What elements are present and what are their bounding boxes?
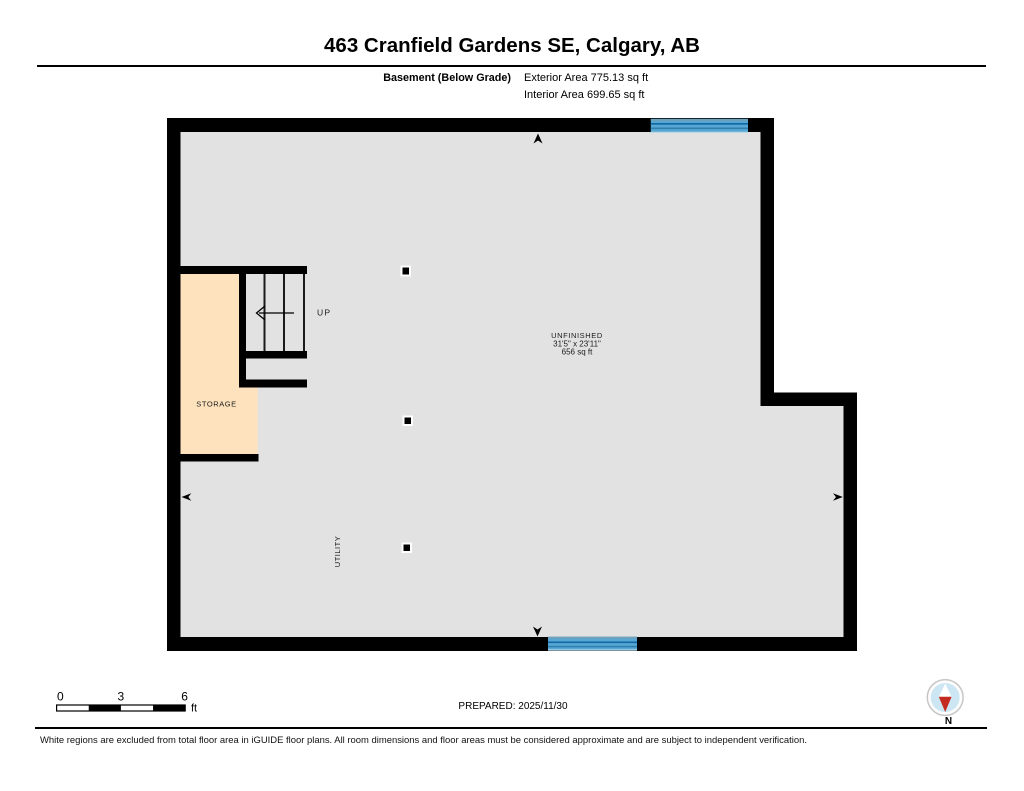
svg-text:3: 3: [118, 690, 125, 704]
svg-text:UTILITY: UTILITY: [333, 536, 342, 567]
svg-text:6: 6: [181, 690, 188, 704]
svg-text:656 sq ft: 656 sq ft: [562, 348, 593, 357]
svg-text:PREPARED: 2025/11/30: PREPARED: 2025/11/30: [458, 701, 568, 712]
svg-text:STORAGE: STORAGE: [196, 400, 236, 409]
svg-text:UP: UP: [317, 308, 331, 318]
svg-text:0: 0: [57, 690, 64, 704]
svg-text:ft: ft: [191, 703, 197, 715]
svg-text:N: N: [945, 716, 952, 727]
